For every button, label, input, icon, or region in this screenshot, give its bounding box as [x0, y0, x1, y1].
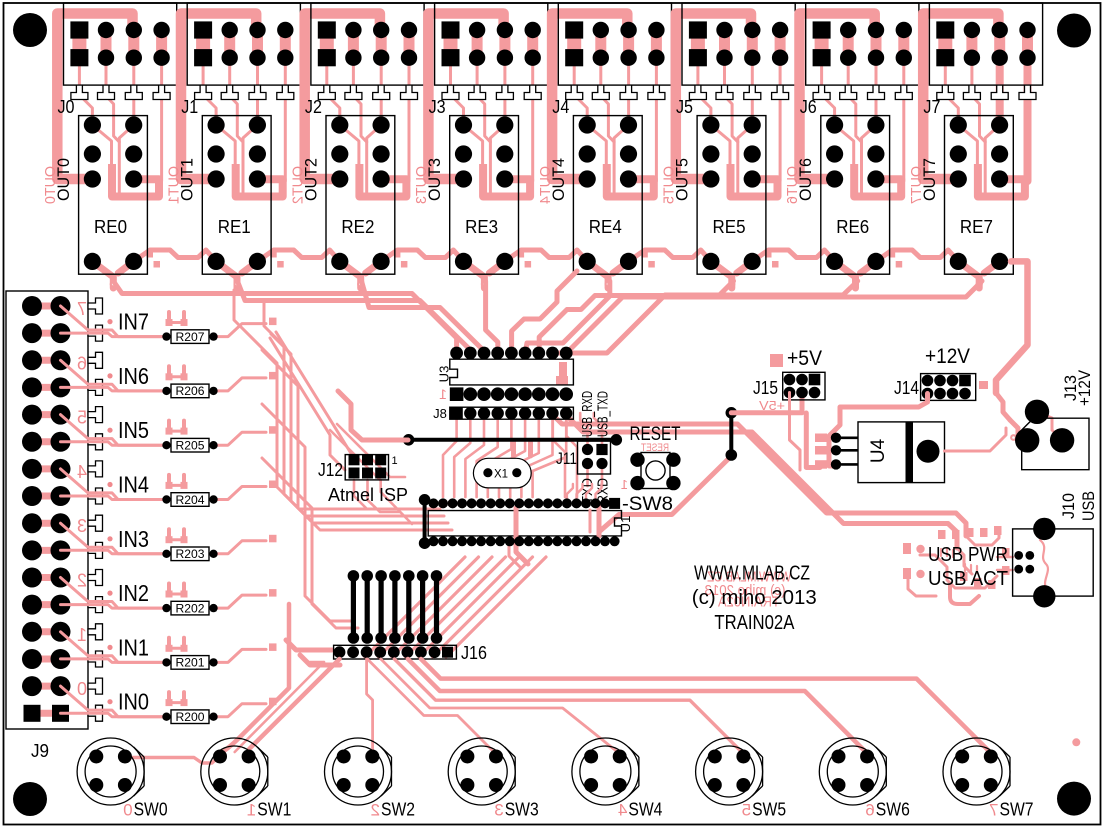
svg-text:4: 4	[618, 801, 627, 820]
svg-text:U3: U3	[437, 366, 452, 383]
svg-text:J7: J7	[923, 97, 940, 117]
svg-text:OUT7: OUT7	[920, 158, 939, 201]
svg-text:IN3: IN3	[118, 526, 149, 552]
svg-text:RE1: RE1	[218, 217, 251, 237]
svg-text:TRAIN02A: TRAIN02A	[714, 612, 795, 634]
svg-text:R201: R201	[176, 658, 205, 670]
svg-text:3: 3	[77, 516, 87, 536]
svg-text:SW3: SW3	[505, 800, 539, 820]
svg-text:IN6: IN6	[118, 363, 149, 389]
svg-text:J0: J0	[58, 97, 75, 117]
svg-text:+5V: +5V	[787, 347, 822, 370]
svg-text:OUT2: OUT2	[301, 158, 320, 201]
svg-text:+12V: +12V	[925, 345, 970, 368]
svg-text:OUT3: OUT3	[425, 158, 444, 201]
svg-text:RE4: RE4	[589, 217, 622, 237]
svg-text:OUT5: OUT5	[673, 158, 692, 201]
svg-text:IN4: IN4	[118, 472, 149, 498]
svg-text:USB ACT: USB ACT	[928, 568, 1008, 590]
svg-text:1: 1	[77, 625, 87, 645]
svg-text:RE5: RE5	[713, 217, 746, 237]
svg-text:5: 5	[742, 801, 751, 820]
svg-text:USB_RXD: USB_RXD	[580, 391, 596, 437]
svg-text:J9: J9	[31, 741, 49, 761]
svg-text:R206: R206	[176, 386, 205, 398]
svg-text:J8: J8	[433, 406, 447, 421]
svg-text:OUT4: OUT4	[549, 158, 568, 201]
svg-text:4: 4	[77, 462, 87, 482]
svg-text:2: 2	[371, 801, 380, 820]
svg-text:Atmel ISP: Atmel ISP	[328, 485, 408, 505]
svg-text:0: 0	[123, 801, 132, 820]
svg-text:U1: U1	[618, 516, 633, 533]
svg-text:J1: J1	[181, 97, 198, 117]
svg-text:J3: J3	[429, 97, 446, 117]
svg-text:R207: R207	[176, 332, 205, 344]
svg-text:X1: X1	[494, 469, 508, 481]
svg-text:IN1: IN1	[118, 634, 149, 660]
svg-text:RE3: RE3	[465, 217, 498, 237]
svg-text:J2: J2	[305, 97, 322, 117]
svg-text:RE6: RE6	[836, 217, 869, 237]
svg-text:J15: J15	[753, 378, 778, 398]
svg-text:OUT0: OUT0	[54, 158, 73, 201]
svg-text:J6: J6	[800, 97, 817, 117]
svg-text:WWW.MLAB.CZ: WWW.MLAB.CZ	[694, 562, 810, 584]
svg-text:SW4: SW4	[628, 800, 662, 820]
svg-text:6: 6	[865, 801, 874, 820]
svg-text:OUT6: OUT6	[796, 158, 815, 201]
svg-text:7: 7	[77, 299, 87, 319]
svg-text:(c) miho 2013: (c) miho 2013	[692, 587, 817, 609]
svg-text:USB PWR: USB PWR	[928, 544, 1008, 566]
svg-text:RE0: RE0	[94, 217, 127, 237]
svg-text:RE2: RE2	[341, 217, 374, 237]
svg-text:R202: R202	[176, 603, 205, 615]
svg-text:J16: J16	[461, 643, 487, 663]
svg-text:J4: J4	[552, 97, 569, 117]
svg-text:J5: J5	[676, 97, 693, 117]
svg-text:SW7: SW7	[1000, 800, 1034, 820]
svg-text:USB: USB	[1079, 491, 1098, 521]
svg-text:1: 1	[621, 477, 628, 492]
svg-text:U4: U4	[868, 438, 889, 463]
svg-text:0: 0	[77, 679, 87, 699]
svg-text:J10: J10	[1059, 493, 1078, 519]
svg-text:J11: J11	[556, 449, 577, 468]
svg-text:6: 6	[77, 353, 87, 373]
svg-text:SW1: SW1	[257, 800, 291, 820]
svg-text:+12V: +12V	[1075, 369, 1094, 406]
svg-text:IN0: IN0	[118, 689, 149, 715]
svg-text:IN5: IN5	[118, 417, 149, 443]
svg-text:7: 7	[989, 801, 998, 820]
svg-text:SW2: SW2	[381, 800, 415, 820]
svg-text:+5V: +5V	[759, 398, 785, 413]
svg-text:SW5: SW5	[752, 800, 786, 820]
svg-text:-SW8: -SW8	[622, 494, 673, 515]
svg-text:IN7: IN7	[118, 309, 149, 335]
svg-text:1: 1	[392, 455, 398, 467]
svg-text:IN2: IN2	[118, 580, 149, 606]
svg-text:R203: R203	[176, 549, 205, 561]
svg-text:3: 3	[494, 801, 503, 820]
svg-text:J14: J14	[894, 378, 919, 398]
svg-text:RE7: RE7	[960, 217, 993, 237]
svg-text:1: 1	[439, 386, 447, 402]
svg-text:SW6: SW6	[876, 800, 910, 820]
svg-text:SW0: SW0	[134, 800, 168, 820]
svg-text:R200: R200	[176, 712, 205, 724]
svg-text:R205: R205	[176, 441, 205, 453]
svg-text:5: 5	[77, 408, 87, 428]
svg-text:USB_TXD: USB_TXD	[596, 391, 612, 437]
svg-text:R204: R204	[176, 495, 206, 507]
svg-text:J12: J12	[318, 460, 343, 480]
svg-text:2: 2	[77, 571, 87, 591]
svg-text:1: 1	[247, 801, 256, 820]
svg-text:OUT1: OUT1	[178, 158, 197, 201]
